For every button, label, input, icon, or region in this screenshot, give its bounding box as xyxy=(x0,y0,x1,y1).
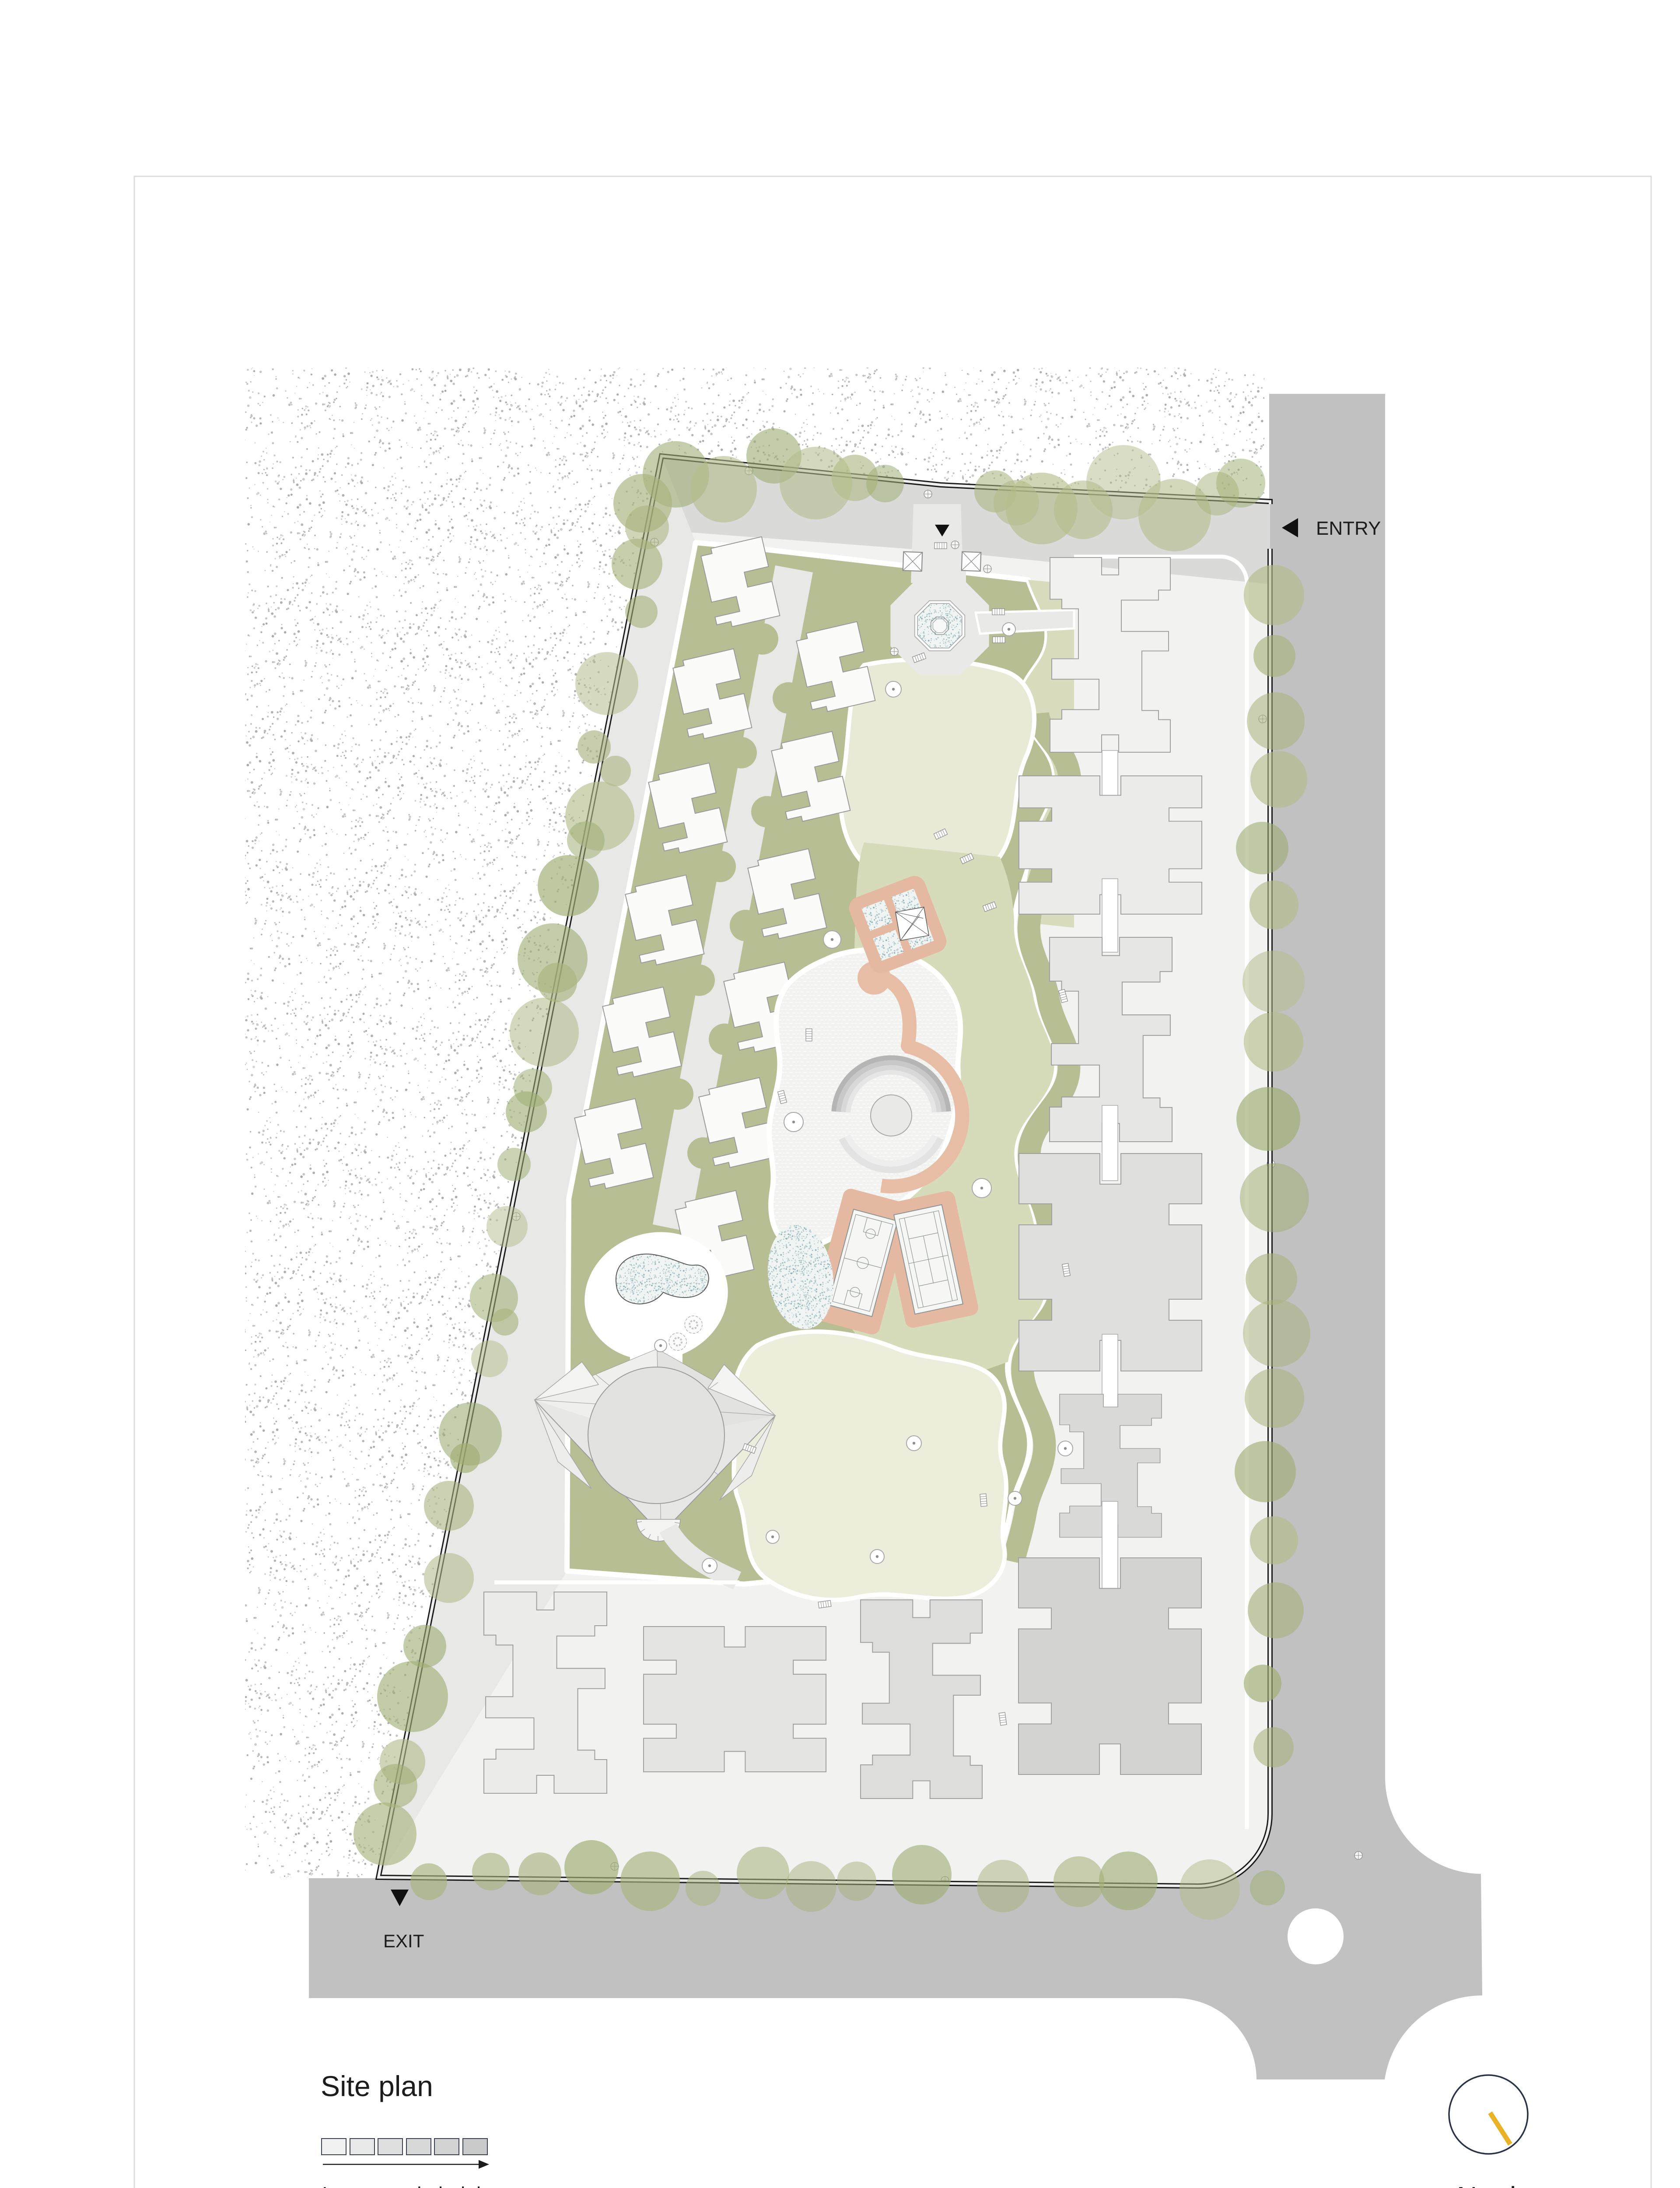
svg-text:Site plan: Site plan xyxy=(321,2070,433,2102)
svg-text:EXIT: EXIT xyxy=(383,1931,424,1951)
svg-text:North: North xyxy=(1457,2181,1526,2188)
svg-text:ENTRY: ENTRY xyxy=(1316,518,1381,539)
svg-text:Increment in height: Increment in height xyxy=(322,2183,493,2188)
